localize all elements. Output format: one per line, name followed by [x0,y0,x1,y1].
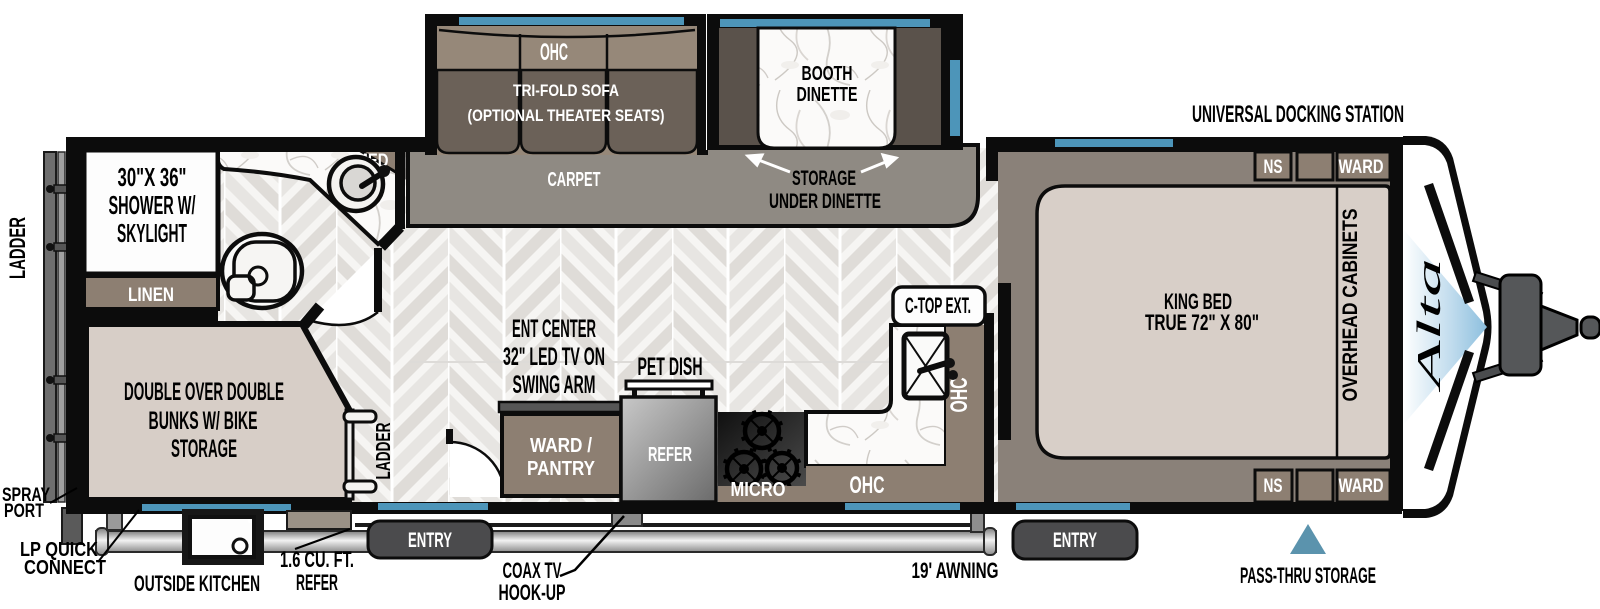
svg-text:DINETTE: DINETTE [797,84,858,106]
svg-text:REFER: REFER [648,444,692,466]
svg-text:OHC: OHC [540,39,568,66]
svg-text:WARD: WARD [1339,157,1384,178]
svg-text:MICRO: MICRO [731,479,786,501]
svg-text:PANTRY: PANTRY [527,458,596,480]
svg-text:32" LED TV ON: 32" LED TV ON [503,343,605,371]
svg-text:C-TOP EXT.: C-TOP EXT. [905,293,971,318]
svg-text:TRI-FOLD SOFA: TRI-FOLD SOFA [513,81,619,100]
svg-text:OHC: OHC [850,472,885,499]
svg-text:STORAGE: STORAGE [171,435,237,463]
svg-text:TRUE 72" X 80": TRUE 72" X 80" [1145,310,1259,335]
svg-text:NS: NS [1264,157,1283,178]
svg-text:BOOTH: BOOTH [802,63,853,85]
svg-text:1.6 CU. FT.: 1.6 CU. FT. [280,547,354,572]
svg-text:SKYLIGHT: SKYLIGHT [117,218,187,248]
svg-text:OVERHEAD CABINETS: OVERHEAD CABINETS [1339,209,1362,402]
svg-text:ENT CENTER: ENT CENTER [512,315,596,343]
svg-text:19' AWNING: 19' AWNING [912,558,999,583]
svg-text:NS: NS [1264,476,1283,497]
svg-text:UNDER DINETTE: UNDER DINETTE [769,190,881,213]
svg-text:DOUBLE OVER DOUBLE: DOUBLE OVER DOUBLE [124,378,284,406]
svg-text:(OPTIONAL THEATER SEATS): (OPTIONAL THEATER SEATS) [468,106,665,125]
svg-text:SHOWER W/: SHOWER W/ [109,190,196,220]
svg-text:LADDER: LADDER [5,217,30,279]
svg-text:CONNECT: CONNECT [24,557,106,579]
svg-text:OUTSIDE KITCHEN: OUTSIDE KITCHEN [134,571,260,596]
svg-text:30"X 36": 30"X 36" [118,162,187,192]
svg-text:Alta: Alta [1411,258,1448,393]
svg-text:ENTRY: ENTRY [408,529,452,552]
svg-text:ENTRY: ENTRY [1053,529,1097,552]
svg-text:PORT: PORT [4,501,44,522]
svg-text:PET DISH: PET DISH [638,353,703,381]
svg-text:SWING ARM: SWING ARM [513,371,596,399]
svg-text:WARD /: WARD / [530,435,592,457]
svg-text:PASS-THRU STORAGE: PASS-THRU STORAGE [1240,563,1376,588]
svg-text:REFER: REFER [296,570,338,595]
svg-text:LADDER: LADDER [373,422,395,479]
svg-text:BUNKS W/ BIKE: BUNKS W/ BIKE [149,407,258,435]
svg-text:WARD: WARD [1339,476,1384,497]
svg-text:UNIVERSAL DOCKING STATION: UNIVERSAL DOCKING STATION [1192,101,1404,128]
svg-text:OHC: OHC [946,378,973,413]
svg-text:CARPET: CARPET [548,169,601,191]
svg-text:STORAGE: STORAGE [792,167,856,190]
svg-text:LINEN: LINEN [128,285,174,306]
svg-text:HOOK-UP: HOOK-UP [499,580,566,605]
